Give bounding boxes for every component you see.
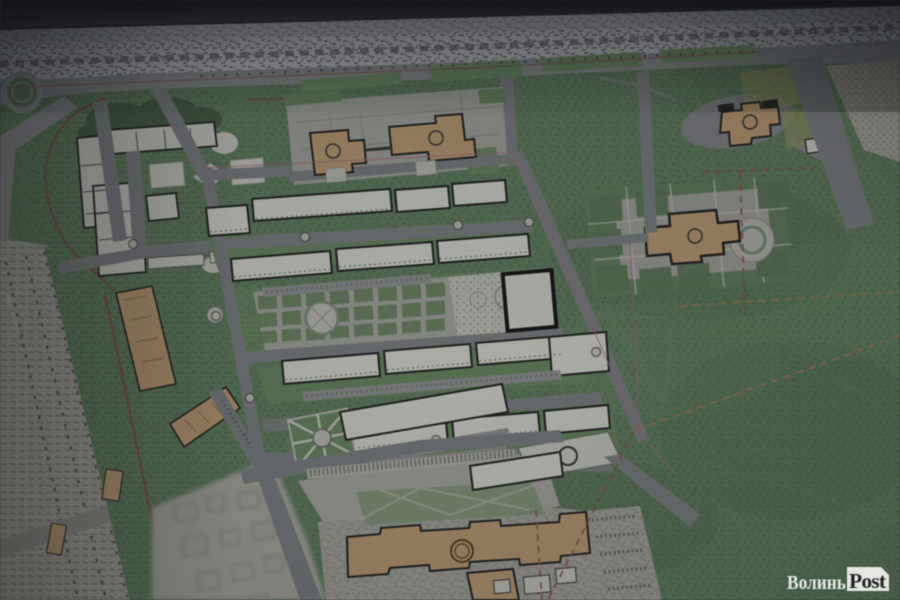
svg-text:Волинь: Волинь	[787, 572, 846, 594]
svg-text:Post: Post	[849, 569, 887, 593]
